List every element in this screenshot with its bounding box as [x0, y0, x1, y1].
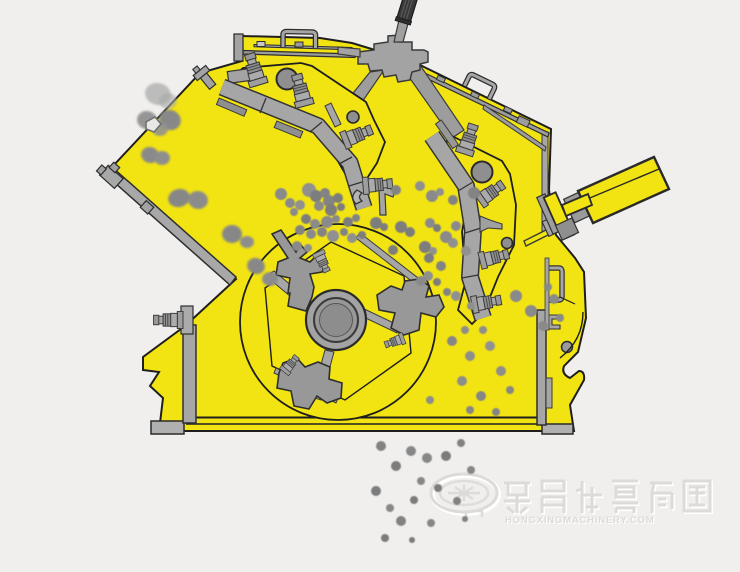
svg-text:HONGXINGMACHINERY.COM: HONGXINGMACHINERY.COM: [505, 515, 654, 526]
